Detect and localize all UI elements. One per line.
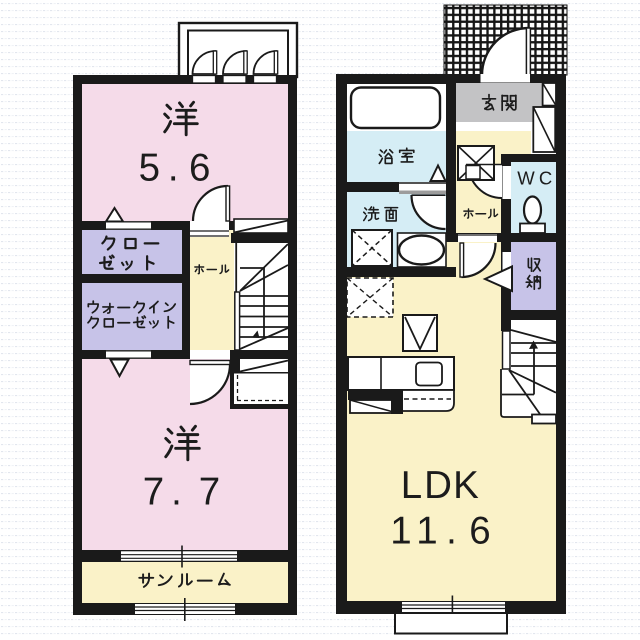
svg-text:1: 1 xyxy=(416,510,437,553)
svg-text:5: 5 xyxy=(139,146,160,189)
svg-text:C: C xyxy=(539,168,552,189)
svg-text:7: 7 xyxy=(199,471,220,514)
svg-text:6: 6 xyxy=(469,510,490,553)
svg-text:D: D xyxy=(424,464,452,507)
svg-text:6: 6 xyxy=(189,146,210,189)
svg-text:7: 7 xyxy=(143,471,164,514)
svg-text:.: . xyxy=(171,471,182,514)
svg-text:L: L xyxy=(401,464,422,507)
svg-text:.: . xyxy=(168,146,179,189)
svg-text:K: K xyxy=(453,464,479,507)
svg-text:1: 1 xyxy=(390,510,411,553)
svg-text:.: . xyxy=(446,510,457,553)
svg-text:W: W xyxy=(517,168,535,189)
